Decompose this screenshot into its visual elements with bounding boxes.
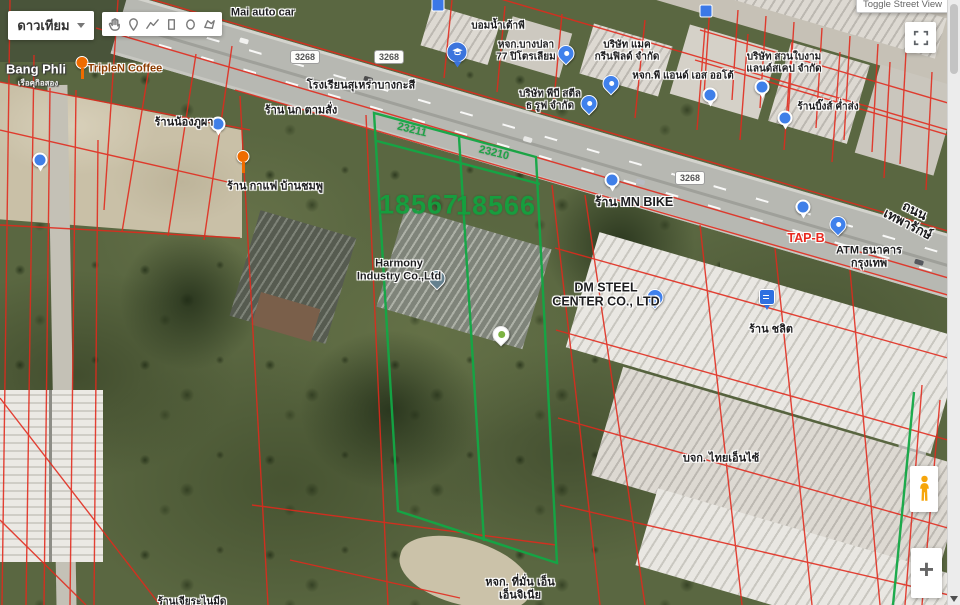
map-label-chalit: ร้าน ชลิต	[749, 324, 793, 337]
store-icon[interactable]	[759, 289, 775, 305]
map-type-label: ดาวเทียม	[17, 15, 69, 36]
fullscreen-button[interactable]	[905, 22, 936, 53]
caret-down-icon	[77, 23, 85, 32]
map-label-bangpla-77: หจก.บางปลา 77 ปิโตรเลียม	[496, 40, 555, 63]
poi-dot-icon[interactable]	[605, 173, 620, 188]
map-label-tap-b: TAP-B	[787, 231, 824, 245]
polyline-icon[interactable]	[144, 16, 161, 33]
poi-dot-icon[interactable]	[796, 200, 811, 215]
map-label-school: โรงเรียนสุเหร่าบางกะสี	[307, 80, 415, 93]
route-shield-3268: 3268	[675, 171, 705, 185]
map-label-teenan: หจก. ที่มั่น เอ็น เอ็นจิเนีย	[485, 576, 554, 601]
map-label-bang-phli: Bang Phli	[6, 63, 66, 78]
pegman-button[interactable]	[910, 466, 938, 512]
place-marker-icon[interactable]	[125, 16, 142, 33]
map-label-triplen-coffee: TripleN Coffee	[88, 63, 163, 76]
poi-dot-icon[interactable]	[778, 111, 793, 126]
route-shield-3268: 3268	[374, 50, 404, 64]
tree-cluster	[300, 330, 480, 490]
map-label-p-and-s-auto: หจก.พี แอนด์ เอส ออโต้	[632, 70, 733, 82]
toggle-street-view-button[interactable]: Toggle Street View	[856, 0, 948, 13]
warehouse-roof-left	[0, 390, 103, 562]
map-label-mac-greenfield: บริษัท แมค กรีนฟิลด์ จำกัด	[595, 40, 660, 63]
map-label-dm-steel: DM STEEL CENTER CO., LTD	[552, 281, 659, 310]
map-label-bottom-left: ร้านเจียระไนมีด	[158, 596, 227, 605]
parcel-number-right: 18566	[456, 191, 536, 222]
polygon-icon[interactable]	[201, 16, 218, 33]
map-label-bom-nam-tao: บอมน้ำเต้าพี	[471, 20, 525, 32]
rectangle-icon[interactable]	[163, 16, 180, 33]
map-label-suanmai: บริษัท สวนใบงาม แลนด์สเคป จำกัด	[746, 52, 821, 75]
poi-dot-icon[interactable]	[755, 80, 770, 95]
map-label-harmony: Harmony Industry Co.,Ltd	[357, 257, 441, 282]
map-label-nong-phupha: ร้านน้องภูผา	[155, 117, 214, 130]
map-label-nok: ร้าน นก ตามสั่ง	[265, 105, 338, 118]
scrollbar-thumb[interactable]	[950, 4, 958, 74]
map-label-atm: ATM ธนาคารกรุงเทพ	[830, 244, 909, 269]
store-icon[interactable]	[700, 5, 713, 18]
store-icon[interactable]	[432, 0, 445, 12]
drawing-toolbar	[102, 12, 222, 36]
pegman-icon	[917, 475, 932, 503]
school-icon[interactable]	[447, 42, 468, 63]
circle-icon[interactable]	[182, 16, 199, 33]
scroll-down-icon	[950, 596, 958, 605]
coffee-shop-pin-icon[interactable]	[237, 150, 250, 174]
map-label-bing: ร้านบิ๊งส์ ค่ำส่ง	[797, 101, 858, 113]
map-app: 23211 23210 18567 18566 3268 3268 3268 M…	[0, 0, 960, 605]
zoom-in-button[interactable]: +	[911, 548, 942, 598]
fullscreen-icon	[913, 30, 929, 46]
map-label-mai-auto-car: Mai auto car	[231, 7, 295, 20]
toggle-street-view-label: Toggle Street View	[863, 0, 942, 10]
map-label-pb-steel: บริษัท พีบี สตีล ธ รูฟ จำกัด	[519, 89, 581, 112]
scroll-down-arrow[interactable]	[948, 592, 960, 605]
map-label-mn-bike: ร้าน MN BIKE	[595, 195, 674, 209]
pan-hand-icon[interactable]	[106, 16, 123, 33]
zoom-in-icon: +	[919, 554, 934, 585]
coffee-shop-pin-icon[interactable]	[76, 56, 89, 80]
route-shield-3268: 3268	[290, 50, 320, 64]
map-canvas[interactable]: 23211 23210 18567 18566 3268 3268 3268 M…	[0, 0, 948, 605]
map-label-coffee-chomphu: ร้าน กาแฟ บ้านชมพู	[227, 181, 323, 194]
poi-dot-icon[interactable]	[33, 153, 48, 168]
parcel-number-left: 18567	[379, 190, 459, 221]
map-type-button[interactable]: ดาวเทียม	[8, 11, 94, 40]
vertical-scrollbar[interactable]	[947, 0, 960, 605]
map-label-bang-phli-sub: เรือคุกิอสอง	[18, 78, 58, 87]
poi-dot-icon[interactable]	[703, 88, 718, 103]
map-label-thai-en: บจก. ไทยเอ็นไซ้	[683, 453, 759, 466]
